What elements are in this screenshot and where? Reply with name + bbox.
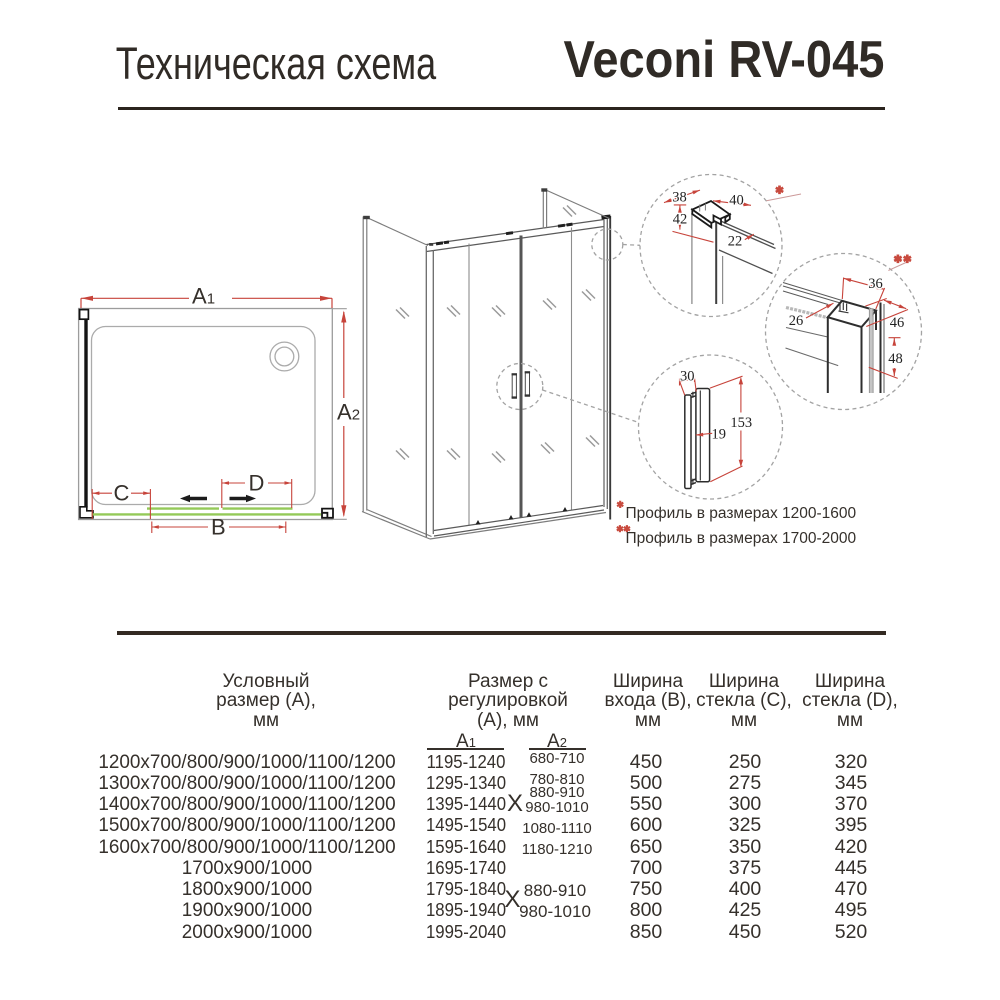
svg-text:30: 30	[680, 369, 695, 385]
svg-text:19: 19	[711, 427, 726, 443]
svg-text:26: 26	[789, 313, 804, 329]
svg-text:B: B	[211, 515, 226, 540]
svg-text:40: 40	[729, 193, 744, 209]
svg-text:A1: A1	[192, 284, 215, 309]
svg-text:38: 38	[672, 190, 687, 206]
svg-text:42: 42	[673, 212, 688, 228]
svg-text:22: 22	[728, 234, 743, 250]
svg-text:153: 153	[730, 415, 752, 431]
svg-text:D: D	[249, 471, 265, 496]
svg-text:36: 36	[868, 276, 883, 292]
svg-text:C: C	[114, 481, 130, 506]
svg-text:48: 48	[888, 351, 903, 367]
svg-text:A2: A2	[337, 400, 360, 425]
svg-text:46: 46	[890, 315, 905, 331]
